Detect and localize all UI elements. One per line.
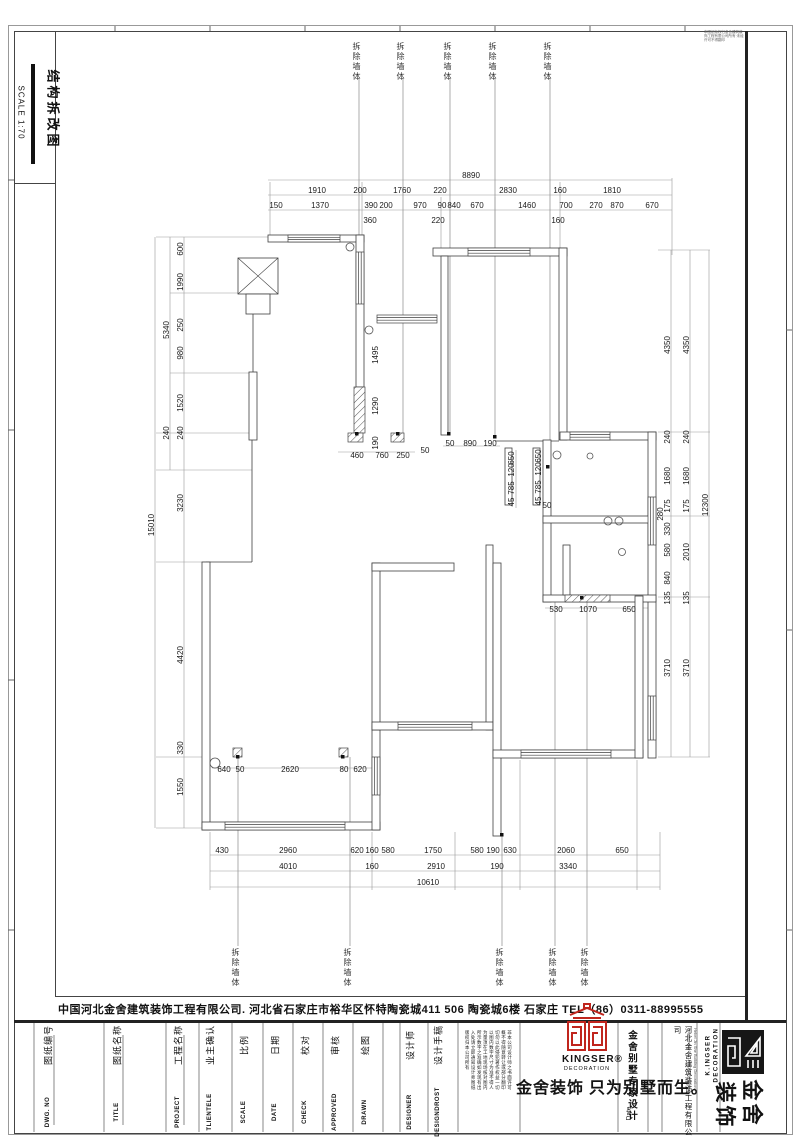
title-block-label-en: DATE bbox=[272, 1103, 278, 1121]
kingser-wordmark-sub: DECORATION bbox=[560, 1066, 614, 1072]
title-block-label-en: DESIGNER bbox=[407, 1094, 413, 1129]
title-block-label-en: CHECK bbox=[302, 1100, 308, 1124]
title-block-label-cn: 日期 bbox=[269, 1035, 282, 1055]
title-block-label-cn: 绘图 bbox=[359, 1035, 372, 1055]
title-block-label-en: DESIGNDROST bbox=[435, 1087, 441, 1137]
title-block-label-en: DWG. NO bbox=[45, 1097, 51, 1128]
kingser-vertical-line1: K.INGSER bbox=[706, 1034, 712, 1075]
title-block-label-en: PROJECT bbox=[175, 1096, 181, 1128]
title-block-label-cn: 设计手稿 bbox=[432, 1025, 445, 1065]
title-block-label-cn: 业主确认 bbox=[204, 1025, 217, 1065]
title-block-label-cn: 图纸名称 bbox=[111, 1025, 124, 1065]
title-block-label-cn: 工程名称 bbox=[172, 1025, 185, 1065]
title-block-label-cn: 审核 bbox=[329, 1035, 342, 1055]
title-block-label-cn: 设计师 bbox=[404, 1030, 417, 1060]
drawing-sheet: 结构拆改图 SCALE 1:70 本图纸版权归金舍建筑装饰工程有限公司所有·未经… bbox=[0, 0, 800, 1138]
title-block-label-en: TLIENTELE bbox=[207, 1093, 213, 1130]
kingser-wordmark: KINGSER® bbox=[562, 1054, 612, 1065]
logo-char-zhuang: 装 bbox=[711, 1082, 741, 1103]
title-block-label-en: APPROVED bbox=[332, 1093, 338, 1131]
title-block-label-en: TITLE bbox=[114, 1102, 120, 1121]
title-block-label-en: DRAWN bbox=[362, 1099, 368, 1124]
title-block-label-cn: 比例 bbox=[238, 1035, 251, 1055]
title-block-label-cn: 校对 bbox=[299, 1035, 312, 1055]
logo-char-shi: 饰 bbox=[711, 1106, 741, 1127]
logo-char-she: 舍 bbox=[738, 1104, 768, 1125]
title-block-fields: 图纸编号DWG. NO图纸名称TITLE工程名称PROJECT业主确认TLIEN… bbox=[0, 0, 800, 1138]
date-label: Date bbox=[625, 1107, 632, 1121]
kingser-red-logo bbox=[562, 1003, 612, 1055]
copyright-disclaimer: 非本公司设计师之书面许可 概不得随意转让或部分翻印 切勿以此侵犯著作权益一切 以… bbox=[464, 1030, 513, 1130]
title-block-label-en: SCALE bbox=[241, 1101, 247, 1124]
logo-char-jin: 金 bbox=[738, 1080, 768, 1101]
title-block-label-cn: 图纸编号 bbox=[42, 1025, 55, 1065]
kingser-vertical-line2: DECORATION bbox=[714, 1028, 720, 1083]
jinshe-black-logo bbox=[722, 1030, 764, 1074]
